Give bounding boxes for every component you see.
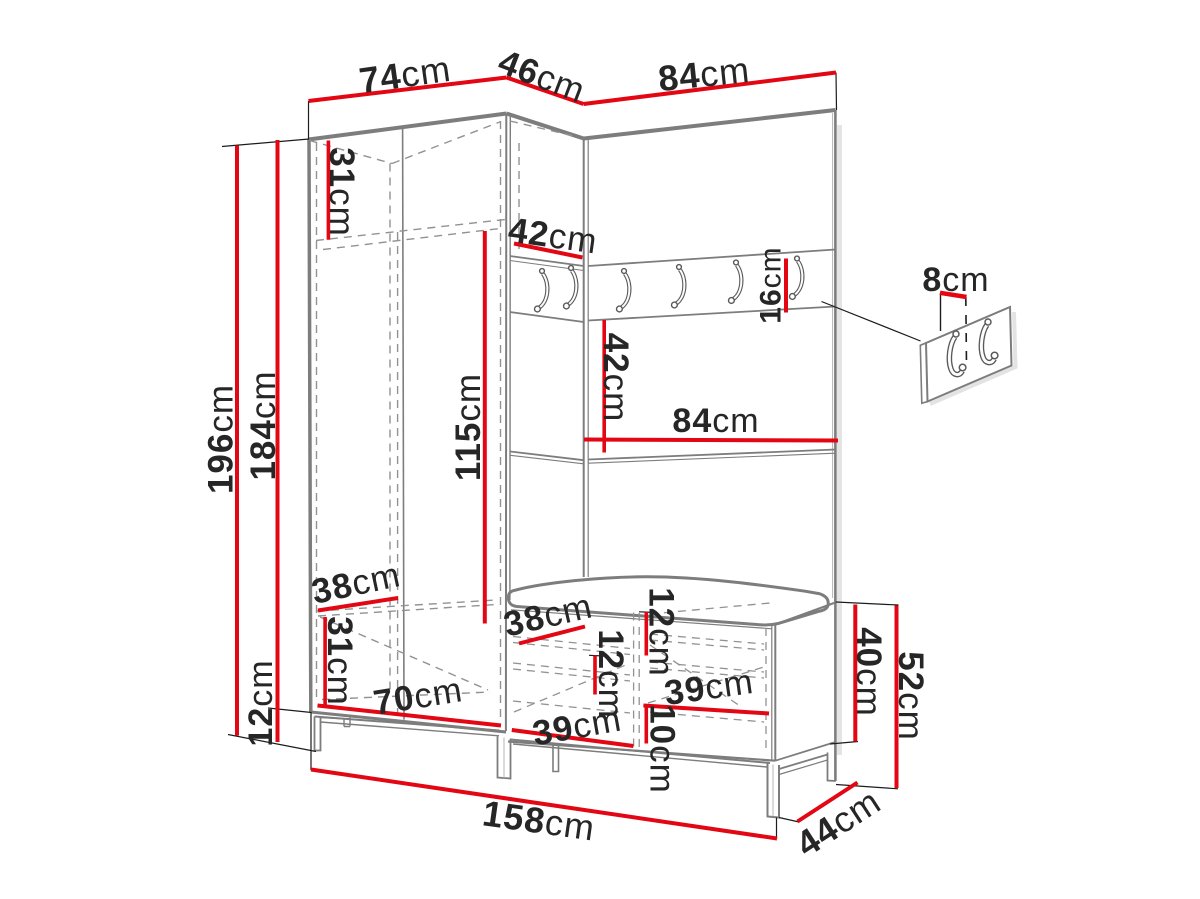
svg-text:84cm: 84cm (672, 402, 759, 440)
svg-text:31cm: 31cm (321, 616, 360, 706)
svg-text:8cm: 8cm (922, 261, 989, 299)
svg-text:10cm: 10cm (643, 704, 682, 794)
svg-text:16cm: 16cm (754, 246, 787, 323)
svg-text:40cm: 40cm (850, 627, 889, 717)
svg-text:196cm: 196cm (201, 384, 240, 494)
svg-text:52cm: 52cm (892, 651, 931, 741)
svg-text:12cm: 12cm (642, 587, 681, 677)
svg-text:31cm: 31cm (323, 147, 362, 237)
svg-text:184cm: 184cm (244, 370, 283, 480)
svg-text:42cm: 42cm (597, 333, 636, 423)
svg-text:115cm: 115cm (449, 373, 488, 481)
svg-text:12cm: 12cm (242, 659, 280, 746)
